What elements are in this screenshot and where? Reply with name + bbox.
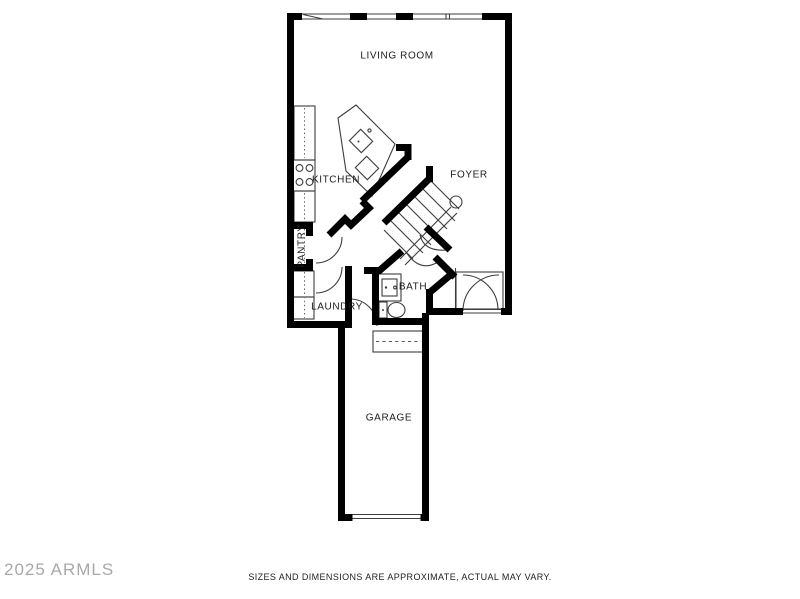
island-sink-icon	[349, 129, 372, 152]
garage-platform	[373, 331, 424, 352]
bath-vanity	[378, 274, 401, 301]
interior-walls	[287, 144, 512, 521]
room-label-living-room: LIVING ROOM	[360, 51, 433, 62]
kitchen-counter	[292, 106, 315, 222]
armls-watermark: 2025 ARMLS	[4, 560, 114, 580]
room-label-laundry: LAUNDRY	[311, 302, 363, 313]
toilet-icon	[379, 302, 405, 318]
disclaimer-text: SIZES AND DIMENSIONS ARE APPROXIMATE, AC…	[248, 572, 551, 582]
room-label-foyer: FOYER	[450, 170, 487, 181]
room-label-bath: BATH	[399, 282, 427, 293]
floor-plan-page: LIVING ROOM KITCHEN FOYER PANTRY BATH LA…	[0, 0, 800, 599]
room-label-garage: GARAGE	[366, 413, 412, 424]
floor-plan-drawing	[0, 0, 800, 599]
room-label-pantry: PANTRY	[297, 224, 308, 267]
stove-icon	[296, 165, 313, 186]
garage-door	[353, 515, 421, 519]
room-label-kitchen: KITCHEN	[312, 175, 360, 186]
windows	[302, 14, 482, 20]
